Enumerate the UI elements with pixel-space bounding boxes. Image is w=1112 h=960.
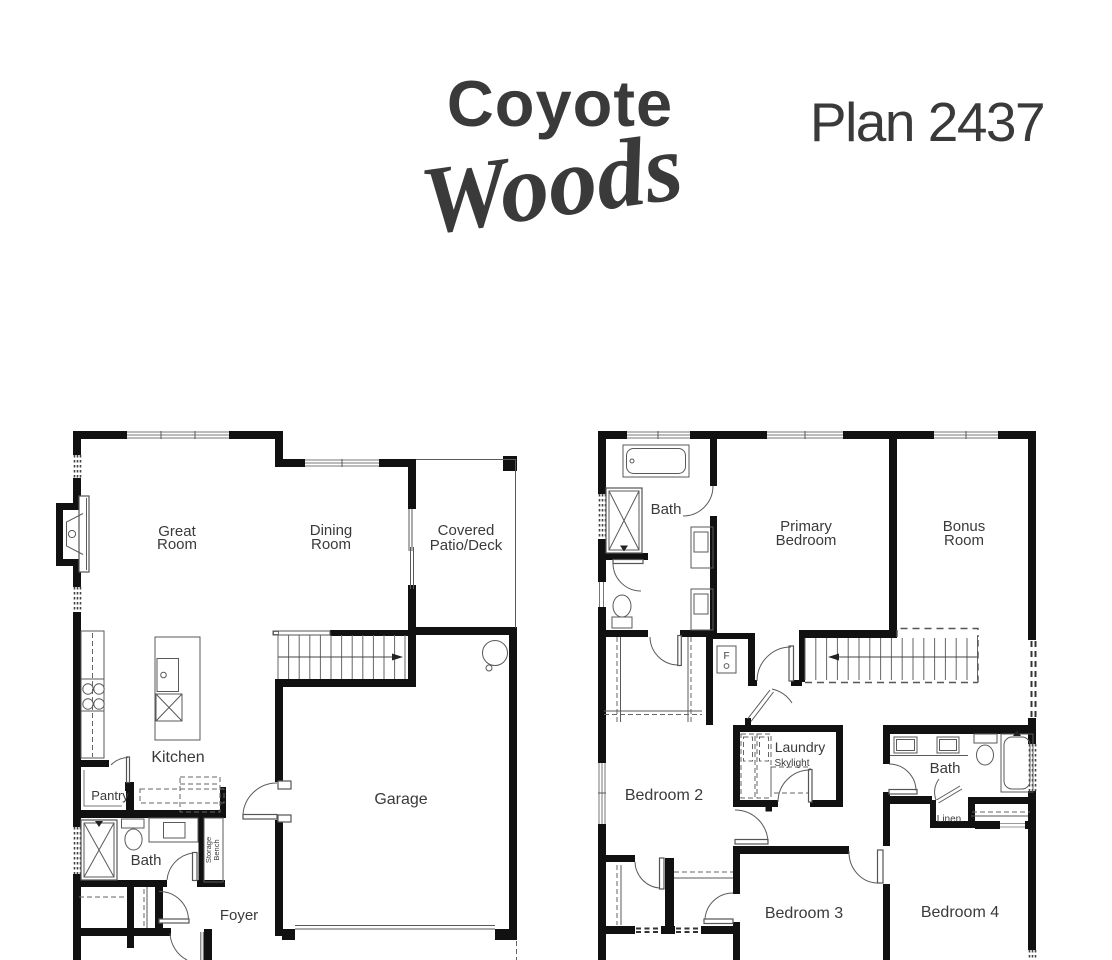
svg-text:Bath: Bath [930,760,961,777]
svg-text:Room: Room [311,536,351,553]
svg-text:Patio/Deck: Patio/Deck [430,537,503,554]
svg-text:Laundry: Laundry [775,739,826,755]
svg-text:Linen: Linen [937,814,961,825]
svg-text:Bedroom 4: Bedroom 4 [921,904,999,921]
svg-text:Room: Room [944,532,984,549]
svg-text:Bath: Bath [651,501,682,518]
svg-text:Plan 2437: Plan 2437 [810,91,1044,153]
svg-text:Garage: Garage [374,791,427,808]
svg-text:Bench: Bench [212,839,221,860]
svg-text:Bedroom: Bedroom [776,532,837,549]
svg-text:Kitchen: Kitchen [151,749,204,766]
svg-text:Pantry: Pantry [91,788,129,803]
svg-text:Bedroom 3: Bedroom 3 [765,905,843,922]
svg-text:Room: Room [157,536,197,553]
svg-text:Bedroom 2: Bedroom 2 [625,787,703,804]
svg-text:Bath: Bath [131,852,162,869]
svg-text:F: F [723,651,729,662]
svg-text:Foyer: Foyer [220,907,258,924]
